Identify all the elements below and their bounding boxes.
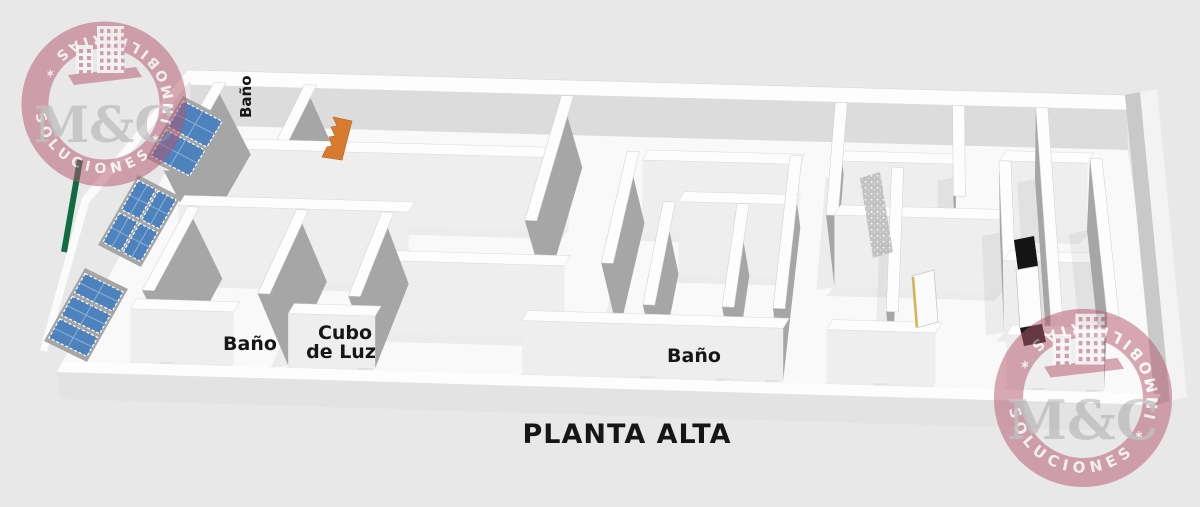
label-bano-upper: Baño bbox=[237, 75, 255, 118]
page-title: PLANTA ALTA bbox=[523, 419, 732, 450]
wall-segment bbox=[522, 321, 783, 381]
cabinet bbox=[1016, 266, 1042, 328]
label-cubo-line2: de Luz bbox=[306, 341, 376, 363]
floor-plan-image: SOLUCIONES * INMOBILIARIAS * M&C bbox=[0, 0, 1200, 507]
label-bano-lower-left: Baño bbox=[223, 333, 277, 355]
wall-top bbox=[953, 105, 966, 196]
label-bano-center: Baño bbox=[667, 345, 721, 367]
wall-segment bbox=[827, 330, 936, 385]
wall-segment bbox=[130, 309, 233, 364]
floor-plan-svg: SOLUCIONES * INMOBILIARIAS * M&C bbox=[0, 0, 1200, 507]
dark-appliance bbox=[1014, 236, 1038, 270]
